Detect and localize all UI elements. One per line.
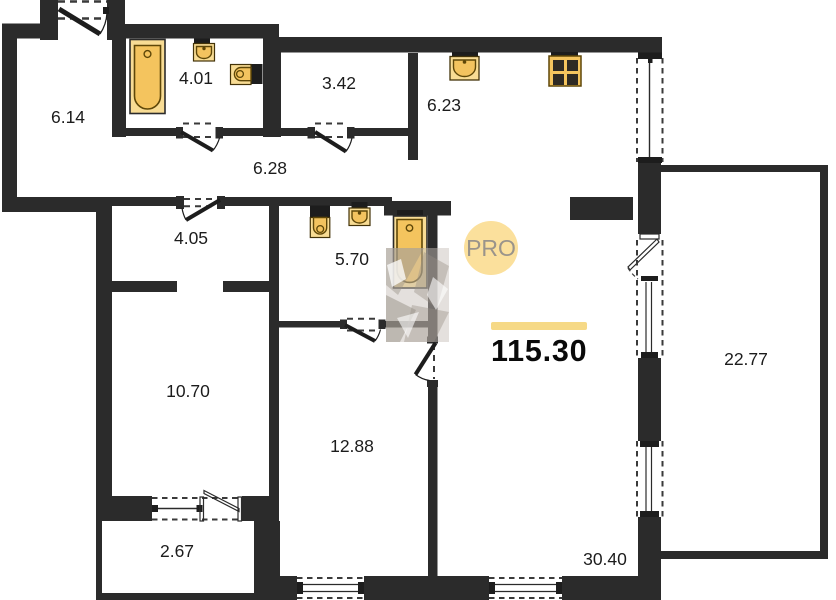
svg-text:PRO: PRO <box>466 235 516 261</box>
svg-text:12.88: 12.88 <box>330 436 374 456</box>
svg-text:115.30: 115.30 <box>491 334 587 368</box>
svg-text:6.28: 6.28 <box>253 158 287 178</box>
svg-text:3.42: 3.42 <box>322 73 356 93</box>
svg-text:10.70: 10.70 <box>166 381 210 401</box>
svg-text:22.77: 22.77 <box>724 349 768 369</box>
svg-text:4.01: 4.01 <box>179 68 213 88</box>
svg-text:30.40: 30.40 <box>583 549 627 569</box>
svg-text:6.23: 6.23 <box>427 95 461 115</box>
svg-text:6.14: 6.14 <box>51 107 85 127</box>
svg-text:4.05: 4.05 <box>174 228 208 248</box>
svg-text:5.70: 5.70 <box>335 249 369 269</box>
svg-text:2.67: 2.67 <box>160 541 194 561</box>
